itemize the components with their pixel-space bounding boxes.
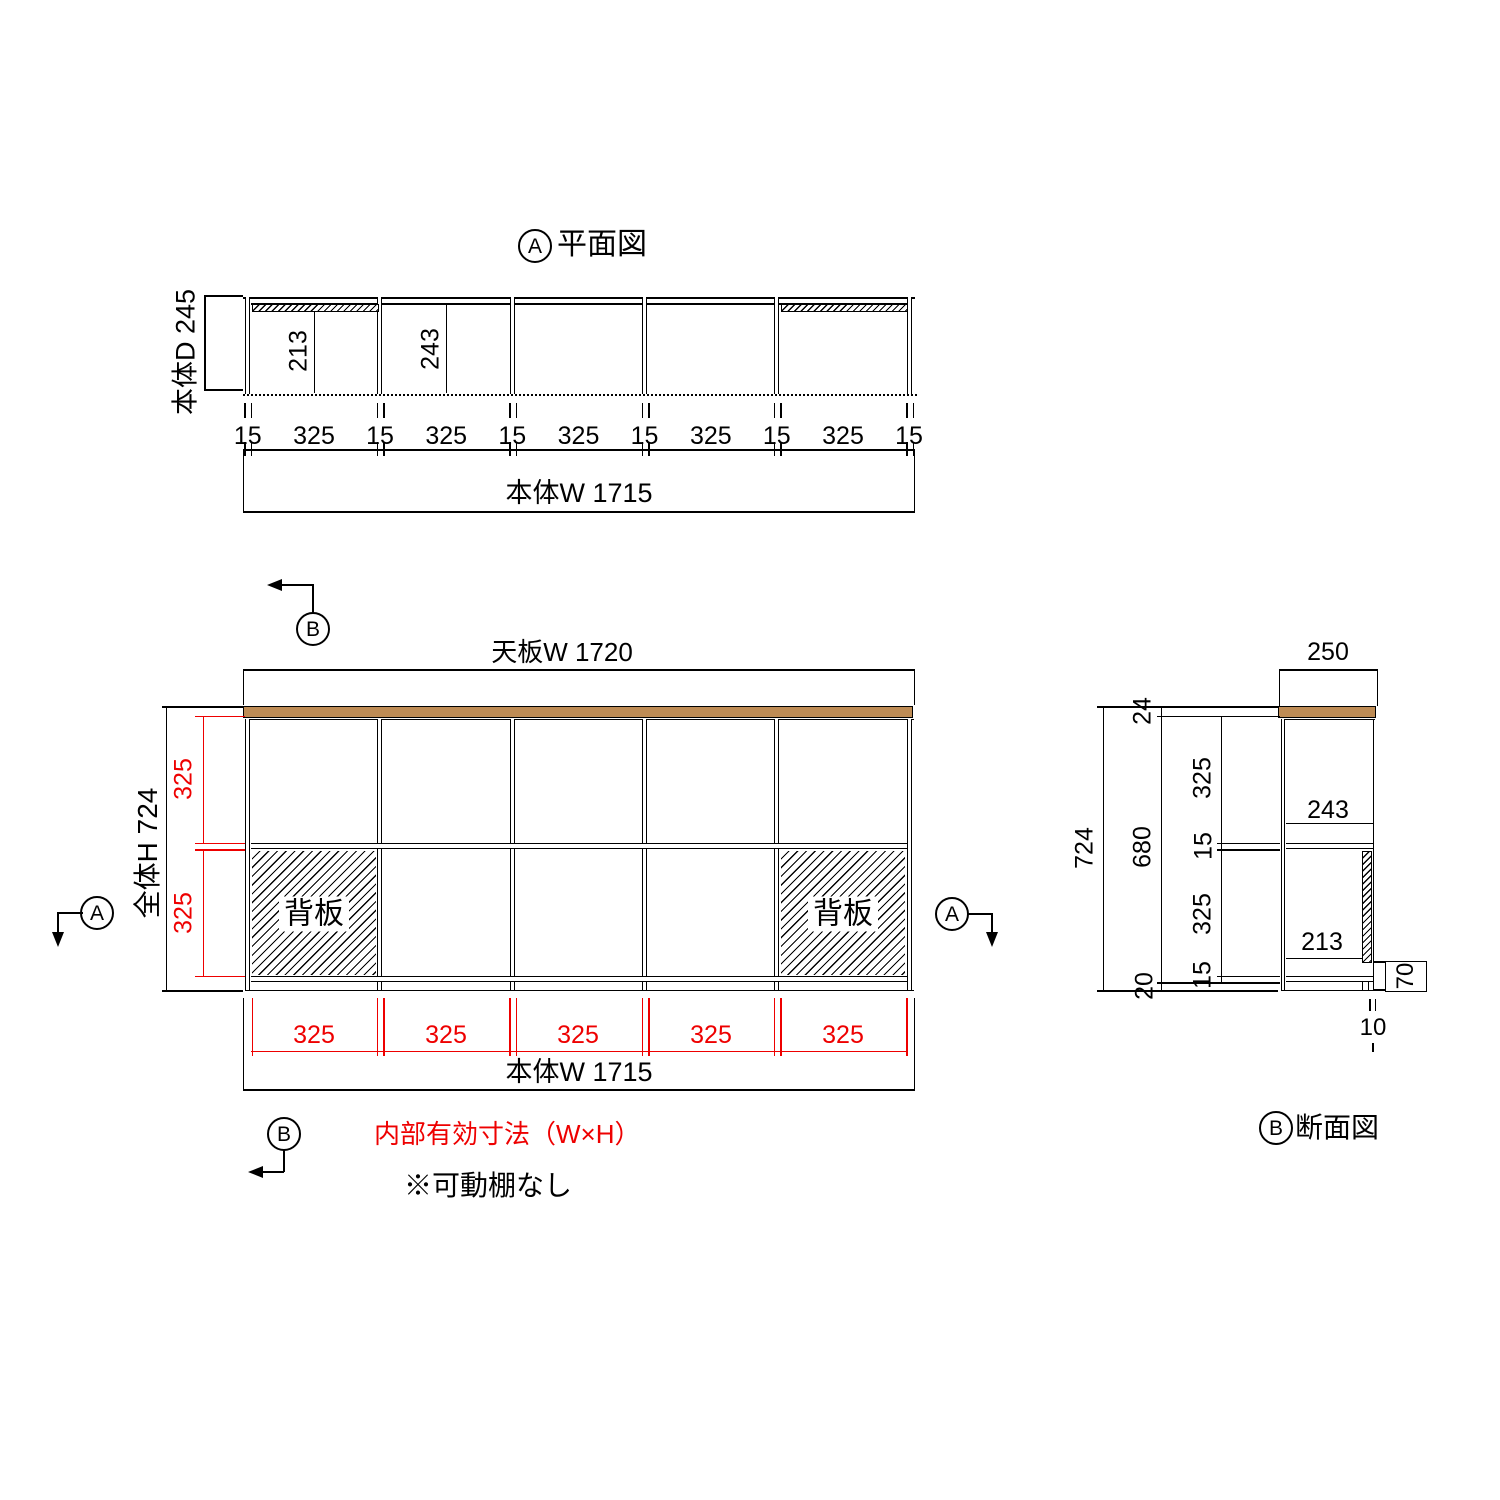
plan-dim-tick: [377, 442, 379, 456]
plan-dim-tick: [774, 442, 776, 456]
plan-dim: 15: [631, 424, 659, 449]
section-base-height: 20: [1133, 972, 1158, 1000]
marker-leader: [312, 584, 314, 614]
plan-depth-243: 243: [419, 328, 444, 370]
cell-dim-ext: [516, 998, 518, 1056]
side-panel-left: [245, 719, 250, 991]
back-panel-label-left: 背板: [279, 897, 349, 932]
marker-leader: [262, 1171, 284, 1173]
no-shelf-note: ※可動棚なし: [404, 1172, 572, 1200]
section-arrow-left-icon: [267, 579, 282, 591]
section-back-gap: 70: [1394, 963, 1418, 990]
plan-depth-dim-line: [314, 311, 316, 393]
plan-side-panel-left: [245, 297, 250, 394]
section-ext-line: [1217, 849, 1280, 851]
vertical-divider: [510, 719, 515, 991]
cell-dim-ext: [774, 998, 776, 1056]
section-back-edge: [1373, 719, 1375, 990]
section-depth-label: 250: [1307, 640, 1349, 665]
lower-row-dim: 325: [172, 892, 197, 934]
section-inner-height: 680: [1131, 826, 1156, 868]
plan-divider: [774, 297, 779, 394]
section-ext-line: [1374, 989, 1385, 991]
section-10-ext: [1369, 999, 1371, 1011]
plan-dim-tick: [642, 403, 644, 418]
plan-dim-tick: [509, 442, 511, 456]
section-bottom-board: [1286, 976, 1373, 982]
plan-dim-tick: [244, 442, 246, 456]
front-width-bracket: [243, 1089, 915, 1091]
plan-depth-dim-line: [446, 304, 448, 393]
section-ext-line: [1157, 982, 1280, 984]
plan-dim-tick: [516, 403, 518, 418]
plan-dim-tick: [509, 403, 511, 418]
plan-dim-tick: [648, 403, 650, 418]
height-ext-line: [162, 706, 243, 708]
bottom-board: [251, 976, 907, 982]
vertical-divider: [642, 719, 647, 991]
plan-depth-label: 本体D 245: [173, 289, 200, 415]
section-title: 断面図: [1295, 1114, 1379, 1142]
section-ext-line: [1217, 843, 1280, 845]
section-upper-depth: 243: [1307, 798, 1349, 823]
plan-dim-tick: [906, 442, 908, 456]
vertical-divider: [774, 719, 779, 991]
plan-section-marker-a: A: [518, 229, 552, 263]
plan-dim: 325: [822, 424, 864, 449]
plan-depth-bracket-tick: [204, 389, 243, 391]
height-ext-line: [162, 990, 243, 992]
top-width-dim-line: [243, 669, 915, 671]
section-depth-dim-line: [1279, 669, 1377, 671]
plan-depth-bracket-line: [204, 295, 206, 390]
inner-dimension-note: 内部有効寸法（W×H）: [374, 1121, 641, 1147]
plan-dim: 15: [895, 424, 923, 449]
section-arrow-down-icon: [986, 932, 998, 947]
section-depth-ext: [1377, 669, 1379, 706]
section-front-edge: [1281, 719, 1285, 990]
section-base-leg: [1362, 982, 1364, 990]
side-panel-right: [907, 719, 912, 991]
section-arrow-left-icon: [248, 1166, 263, 1178]
plan-width-label: 本体W 1715: [505, 480, 652, 507]
plan-divider: [642, 297, 647, 394]
middle-shelf: [251, 843, 907, 849]
section-10-ext: [1375, 999, 1377, 1011]
plan-dim-tick: [251, 442, 253, 456]
marker-leader: [283, 1149, 285, 1172]
marker-leader: [281, 584, 313, 586]
cell-dim-ext: [642, 998, 644, 1056]
section-724-dim-line: [1103, 706, 1105, 991]
section-title-marker-b: B: [1259, 1111, 1293, 1145]
plan-front-open-edge: [243, 394, 917, 396]
cell-dim-ext: [648, 998, 650, 1056]
section-body-top: [1281, 719, 1375, 721]
plan-dim-tick: [913, 403, 915, 418]
plan-dim-tick: [774, 403, 776, 418]
body-bottom-line: [245, 990, 914, 992]
plan-dim: 325: [690, 424, 732, 449]
plan-depth-213: 213: [287, 330, 312, 372]
cell-dim: 325: [690, 1023, 732, 1048]
height-dim-line: [166, 706, 168, 991]
plan-dim-tick: [780, 403, 782, 418]
plan-dim-tick: [642, 442, 644, 456]
section-top-thickness: 24: [1131, 697, 1156, 725]
body-top-line: [245, 719, 914, 721]
cell-dim-ext: [906, 998, 908, 1056]
plan-dim: 15: [234, 424, 262, 449]
plan-width-bracket: [243, 511, 915, 513]
marker-letter: B: [277, 1124, 291, 1145]
plan-dim: 15: [366, 424, 394, 449]
section-ext-line: [1157, 716, 1280, 718]
section-base-leg: [1368, 982, 1370, 990]
marker-letter: A: [90, 903, 104, 924]
marker-letter: B: [306, 619, 320, 640]
plan-dim-tick: [906, 403, 908, 418]
plan-divider: [377, 297, 382, 394]
front-section-marker-a-right: A: [935, 897, 969, 931]
plan-dim-tick: [244, 403, 246, 418]
marker-leader: [58, 912, 83, 914]
plan-dim-tick: [516, 442, 518, 456]
section-10-ext: [1372, 1043, 1374, 1052]
plan-title: 平面図: [557, 230, 647, 260]
marker-letter: B: [1269, 1118, 1283, 1139]
plan-dim-tick: [383, 403, 385, 418]
cell-dim: 325: [557, 1023, 599, 1048]
cell-dim-ext: [377, 998, 379, 1056]
inner-height-dim-line: [203, 850, 205, 977]
plan-dim: 325: [425, 424, 467, 449]
section-213-dim-line: [1286, 958, 1362, 960]
plan-dim: 15: [763, 424, 791, 449]
section-upper-inner-height: 325: [1191, 757, 1216, 799]
plan-dim: 325: [293, 424, 335, 449]
section-ext-line: [1217, 976, 1280, 978]
section-ext-line: [1097, 990, 1278, 992]
front-section-marker-b-bottom: B: [267, 1117, 301, 1151]
section-chain-line: [1161, 706, 1163, 991]
plan-dim-tick: [377, 403, 379, 418]
front-width-label: 本体W 1715: [505, 1059, 652, 1086]
vertical-divider: [377, 719, 382, 991]
plan-width-bracket: [243, 450, 245, 512]
top-board: [243, 706, 913, 718]
section-lower-depth: 213: [1301, 930, 1343, 955]
front-width-bracket: [243, 998, 245, 1090]
marker-letter: A: [945, 904, 959, 925]
cell-dim-ext: [383, 998, 385, 1056]
plan-side-panel-right: [907, 297, 912, 394]
section-depth-ext: [1279, 669, 1281, 706]
cell-dim: 325: [293, 1023, 335, 1048]
front-width-bracket: [914, 998, 916, 1090]
marker-letter: A: [528, 236, 542, 257]
section-shelf-thickness: 15: [1192, 832, 1217, 860]
technical-drawing-canvas: A 平面図 213 243 本体D 245: [0, 0, 1500, 1500]
cell-dim-line: [251, 1051, 907, 1053]
front-section-marker-a-left: A: [80, 896, 114, 930]
inner-height-dim-line: [203, 716, 205, 843]
marker-leader: [967, 913, 992, 915]
section-arrow-down-icon: [52, 932, 64, 947]
plan-back-edge: [243, 297, 915, 299]
plan-dim-line: [243, 449, 915, 451]
cell-dim-ext: [252, 998, 254, 1056]
plan-dim-tick: [648, 442, 650, 456]
overall-height-label: 全体H 724: [134, 788, 162, 919]
cell-dim: 325: [425, 1023, 467, 1048]
plan-depth-bracket-tick: [204, 295, 243, 297]
plan-back-panel-hatch-left: [252, 304, 379, 312]
section-body-bottom: [1281, 990, 1375, 992]
section-shelf: [1286, 843, 1373, 849]
section-overall-height: 724: [1073, 827, 1098, 869]
cell-dim-ext: [509, 998, 511, 1056]
back-panel-label-right: 背板: [808, 897, 878, 932]
cell-dim: 325: [822, 1023, 864, 1048]
plan-dim-tick: [251, 403, 253, 418]
plan-divider: [510, 297, 515, 394]
upper-row-dim: 325: [172, 758, 197, 800]
cell-dim-ext: [780, 998, 782, 1056]
section-back-thickness: 10: [1360, 1016, 1387, 1040]
section-lower-inner-height: 325: [1191, 893, 1216, 935]
section-bottom-thickness: 15: [1191, 961, 1216, 989]
plan-dim: 325: [558, 424, 600, 449]
plan-dim: 15: [498, 424, 526, 449]
plan-width-bracket: [914, 450, 916, 512]
section-chain-line: [1221, 716, 1223, 982]
top-width-ext: [243, 669, 245, 705]
section-ext-line: [1097, 706, 1278, 708]
section-ext-line: [1374, 961, 1385, 963]
section-top-board: [1278, 706, 1376, 718]
section-back-panel-hatch: [1362, 851, 1372, 963]
plan-dim-tick: [383, 442, 385, 456]
top-board-width-label: 天板W 1720: [491, 639, 633, 665]
top-width-ext: [914, 669, 916, 705]
plan-back-panel-hatch-right: [781, 304, 908, 312]
plan-dim-tick: [780, 442, 782, 456]
front-section-marker-b-top: B: [296, 612, 330, 646]
